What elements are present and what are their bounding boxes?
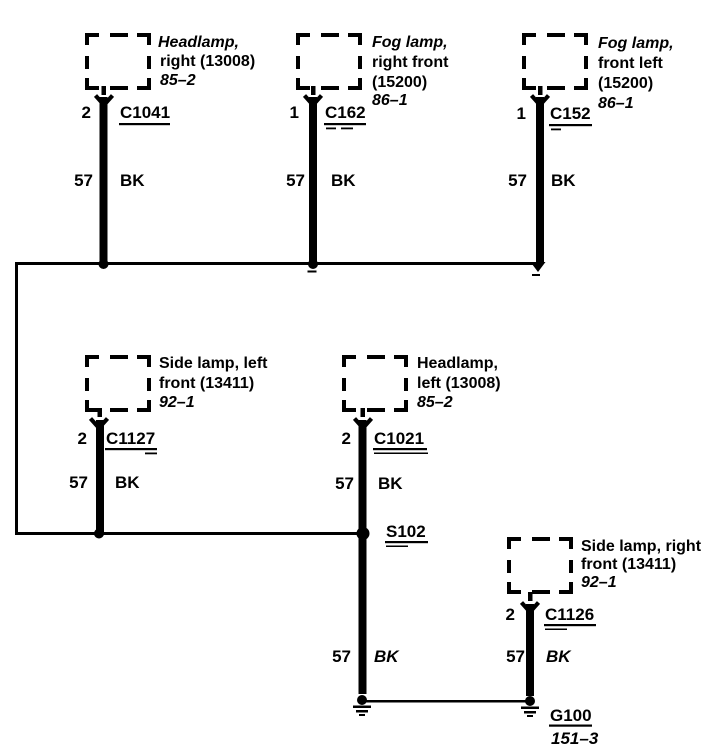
svg-text:Headlamp,: Headlamp, [417,355,498,372]
svg-text:BK: BK [546,647,572,666]
svg-text:C152: C152 [550,104,591,123]
svg-text:57: 57 [69,473,88,492]
svg-text:151–3: 151–3 [551,729,599,748]
svg-text:S102: S102 [386,522,426,541]
svg-text:Fog lamp,: Fog lamp, [598,35,674,52]
svg-text:front left: front left [598,55,664,72]
svg-text:left (13008): left (13008) [417,375,501,392]
svg-text:57: 57 [74,171,93,190]
svg-text:front (13411): front (13411) [581,556,676,573]
svg-text:86–1: 86–1 [372,92,408,109]
svg-text:57: 57 [506,647,525,666]
svg-text:BK: BK [551,171,576,190]
svg-text:C1126: C1126 [545,605,594,624]
svg-text:BK: BK [120,171,145,190]
svg-text:86–1: 86–1 [598,95,634,112]
svg-text:Fog lamp,: Fog lamp, [372,34,448,51]
svg-text:57: 57 [335,474,354,493]
svg-text:1: 1 [517,104,526,123]
svg-text:right front: right front [372,54,449,71]
svg-text:C1127: C1127 [106,429,155,448]
svg-text:57: 57 [332,647,351,666]
svg-text:2: 2 [82,103,91,122]
svg-text:right (13008): right (13008) [160,53,255,70]
svg-text:C1041: C1041 [120,103,170,122]
svg-text:Headlamp,: Headlamp, [158,34,239,51]
svg-text:2: 2 [78,429,87,448]
svg-text:BK: BK [331,171,356,190]
svg-text:BK: BK [374,647,400,666]
svg-text:(15200): (15200) [598,75,653,92]
svg-text:(15200): (15200) [372,74,427,91]
svg-text:92–1: 92–1 [159,394,195,411]
svg-text:C1021: C1021 [374,429,424,448]
svg-text:2: 2 [506,605,515,624]
svg-text:BK: BK [115,473,140,492]
svg-text:BK: BK [378,474,403,493]
svg-text:85–2: 85–2 [160,72,196,89]
svg-text:C162: C162 [325,103,366,122]
svg-text:Side lamp, right: Side lamp, right [581,538,702,555]
svg-text:85–2: 85–2 [417,394,453,411]
svg-text:92–1: 92–1 [581,574,617,591]
svg-text:57: 57 [286,171,305,190]
svg-text:2: 2 [342,429,351,448]
svg-text:G100: G100 [550,706,592,725]
svg-text:Side lamp, left: Side lamp, left [159,355,268,372]
svg-text:1: 1 [290,103,299,122]
svg-text:57: 57 [508,171,527,190]
svg-text:front (13411): front (13411) [159,375,254,392]
